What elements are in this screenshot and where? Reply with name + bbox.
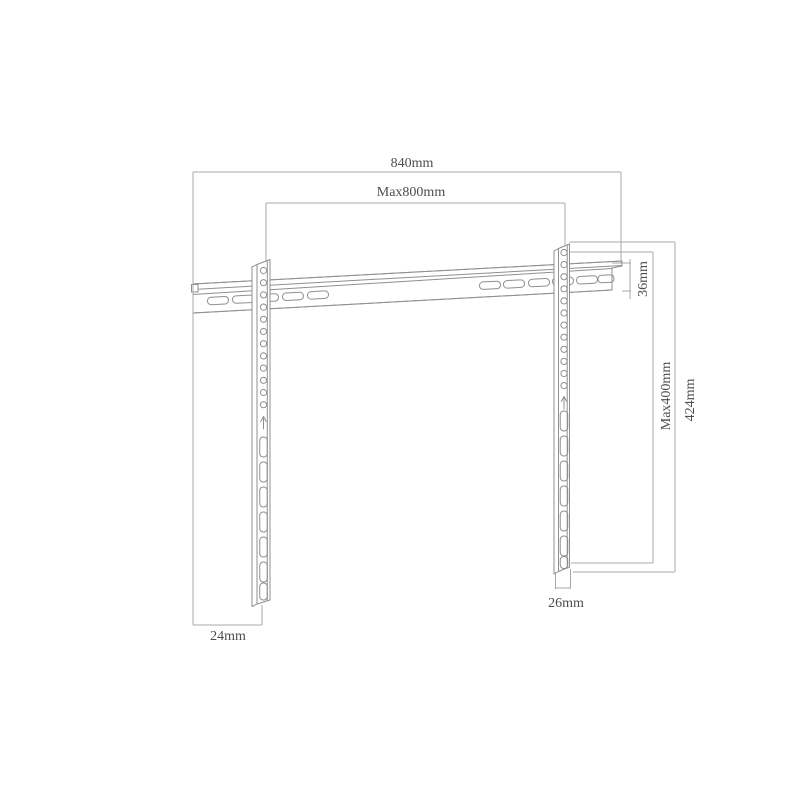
dim-rail-profile-height-label: 36mm — [636, 261, 651, 297]
dim-right-bracket-width: 26mm — [548, 569, 584, 611]
dim-right-bracket-width-label: 26mm — [548, 596, 584, 611]
left-bracket-flange — [252, 265, 257, 607]
dim-max-mount-width: Max800mm — [266, 185, 565, 261]
rail-left-end-tab — [192, 285, 199, 293]
dim-left-bracket-width: 24mm — [193, 605, 262, 644]
dim-bracket-total-height-label: 424mm — [683, 379, 698, 422]
left-bracket-face — [257, 260, 270, 605]
dim-max-mount-height: Max400mm — [570, 252, 675, 563]
right-vesa-bracket — [554, 244, 570, 574]
dim-max-mount-height-label: Max400mm — [659, 362, 674, 431]
mount-dimension-diagram: 840mm Max800mm 36mm Max400mm 424mm — [0, 0, 800, 800]
dim-max-mount-width-label: Max800mm — [377, 185, 446, 200]
right-bracket-flange — [554, 249, 559, 575]
left-vesa-bracket — [252, 260, 270, 607]
dim-left-bracket-width-label: 24mm — [210, 629, 246, 644]
dim-overall-width-label: 840mm — [391, 156, 434, 171]
